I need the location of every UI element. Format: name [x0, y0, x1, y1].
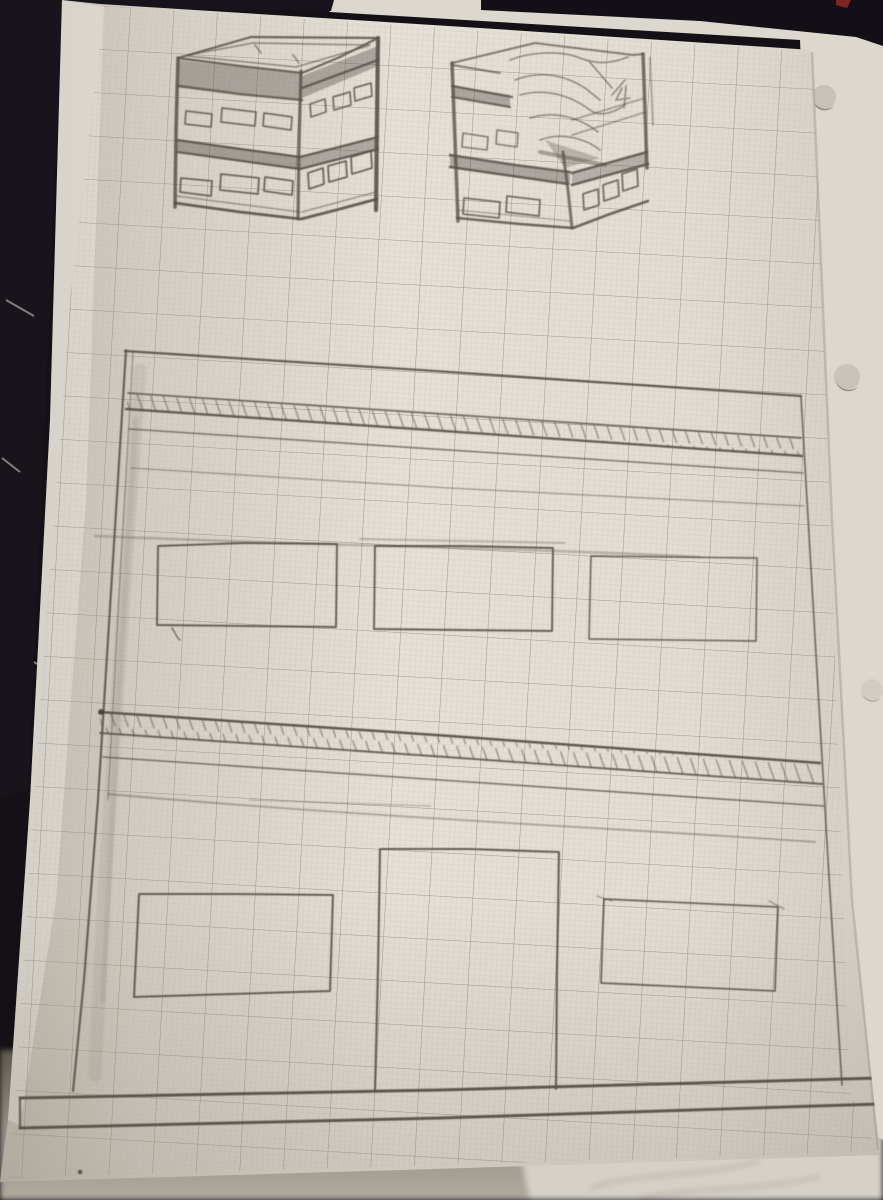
- pencil-speck: [78, 1170, 82, 1174]
- punch-hole-icon: [834, 364, 860, 390]
- paper-grid: [0, 0, 883, 1200]
- graph-paper: [0, 0, 883, 1200]
- photo-canvas: [0, 0, 883, 1200]
- hatch-band-lower-blob: [98, 709, 104, 715]
- photo-svg: [0, 0, 883, 1200]
- paper-bottom-shading: [0, 0, 883, 1200]
